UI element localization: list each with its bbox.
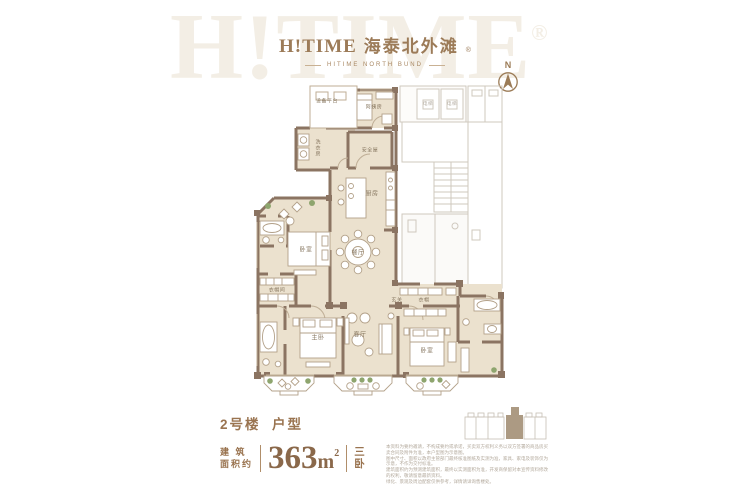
disclaimer-text: 本资料为要约邀请，不构成要约或承诺，买卖双方权利义务以双方签署的商品房买卖合同及… bbox=[386, 444, 548, 485]
unit-info: 2号楼 户型 建 筑 面积约 363m2 三 卧 bbox=[220, 413, 365, 477]
floorplan-page: H!TIME® H!TIME 海泰北外滩 ® HITIME NORTH BUND… bbox=[0, 0, 750, 500]
room-label-bedroom-left: 卧室 bbox=[299, 245, 312, 254]
room-label-equipment-platform: 设备平台 bbox=[316, 98, 338, 105]
divider bbox=[346, 445, 347, 472]
room-label-kitchen: 厨房 bbox=[365, 189, 378, 198]
building-number: 2号楼 bbox=[220, 417, 261, 432]
area-label: 建 筑 面积约 bbox=[220, 446, 253, 470]
room-label-master-bedroom: 主卧 bbox=[311, 333, 324, 342]
elevator-label-2: 电梯 bbox=[447, 101, 457, 107]
room-label-maid-room: 阿姨房 bbox=[366, 104, 383, 111]
room-label-living-room: 客厅 bbox=[353, 330, 366, 339]
room-label-bedroom-right: 卧室 bbox=[420, 346, 433, 355]
bedroom-count: 三 卧 bbox=[354, 446, 365, 470]
room-label-dining: 餐厅 bbox=[351, 248, 364, 257]
core-layer bbox=[400, 86, 502, 288]
highlighted-unit bbox=[506, 407, 523, 439]
elevator-label-1: 电梯 bbox=[423, 101, 433, 107]
unit-title: 2号楼 户型 bbox=[220, 413, 365, 433]
divider bbox=[260, 445, 261, 472]
room-label-closet: 衣帽 bbox=[418, 297, 429, 304]
floor-plan-canvas bbox=[0, 0, 750, 500]
room-label-safe-room: 安全屋 bbox=[362, 147, 379, 154]
room-label-laundry: 洗衣房 bbox=[315, 139, 322, 157]
building-key-plan bbox=[462, 404, 550, 444]
type-label: 户型 bbox=[272, 417, 303, 432]
area-value: 363m2 bbox=[268, 439, 339, 477]
room-label-foyer: 玄关 bbox=[391, 297, 402, 304]
room-label-cloakroom: 衣帽间 bbox=[269, 287, 286, 294]
